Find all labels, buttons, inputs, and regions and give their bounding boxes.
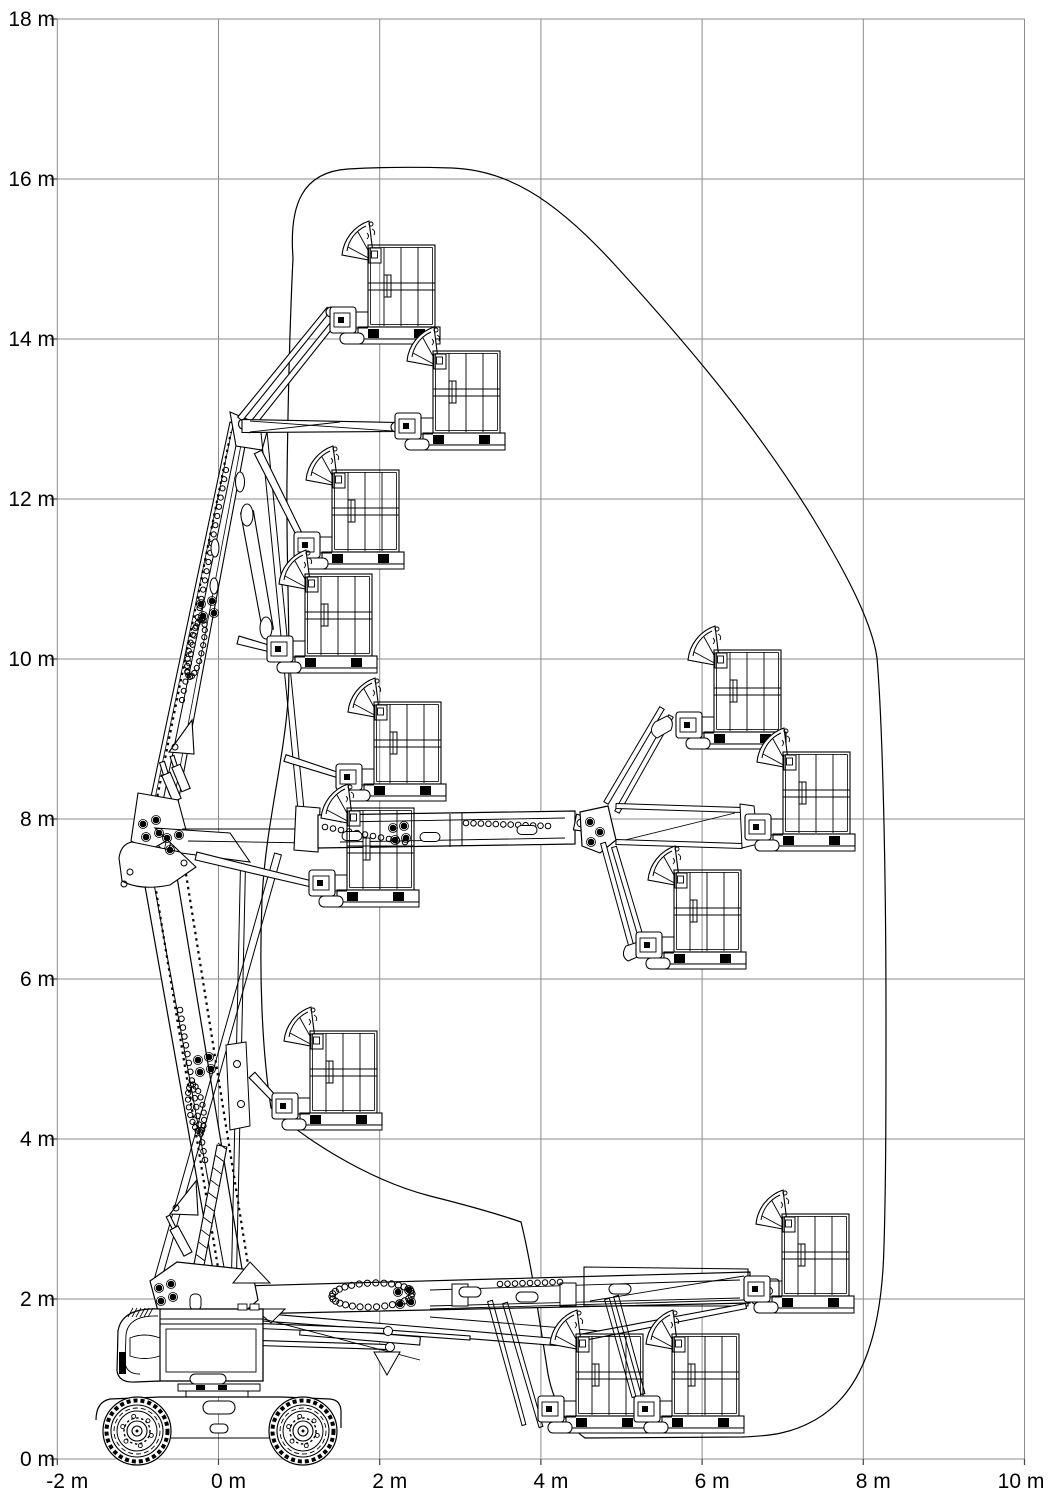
svg-text:18 m: 18 m [8, 8, 55, 31]
svg-text:14 m: 14 m [8, 328, 55, 351]
svg-text:0 m: 0 m [20, 1448, 55, 1471]
svg-text:4 m: 4 m [533, 1470, 568, 1493]
svg-text:2 m: 2 m [20, 1288, 55, 1311]
svg-text:4 m: 4 m [20, 1128, 55, 1151]
svg-text:0 m: 0 m [211, 1470, 246, 1493]
svg-text:10 m: 10 m [8, 648, 55, 671]
svg-text:8 m: 8 m [20, 808, 55, 831]
svg-text:6 m: 6 m [695, 1470, 730, 1493]
svg-text:12 m: 12 m [8, 488, 55, 511]
svg-text:8 m: 8 m [856, 1470, 891, 1493]
svg-text:2 m: 2 m [372, 1470, 407, 1493]
svg-text:-2 m: -2 m [46, 1470, 88, 1493]
svg-text:16 m: 16 m [8, 168, 55, 191]
svg-text:6 m: 6 m [20, 968, 55, 991]
svg-text:10 m: 10 m [998, 1470, 1045, 1493]
